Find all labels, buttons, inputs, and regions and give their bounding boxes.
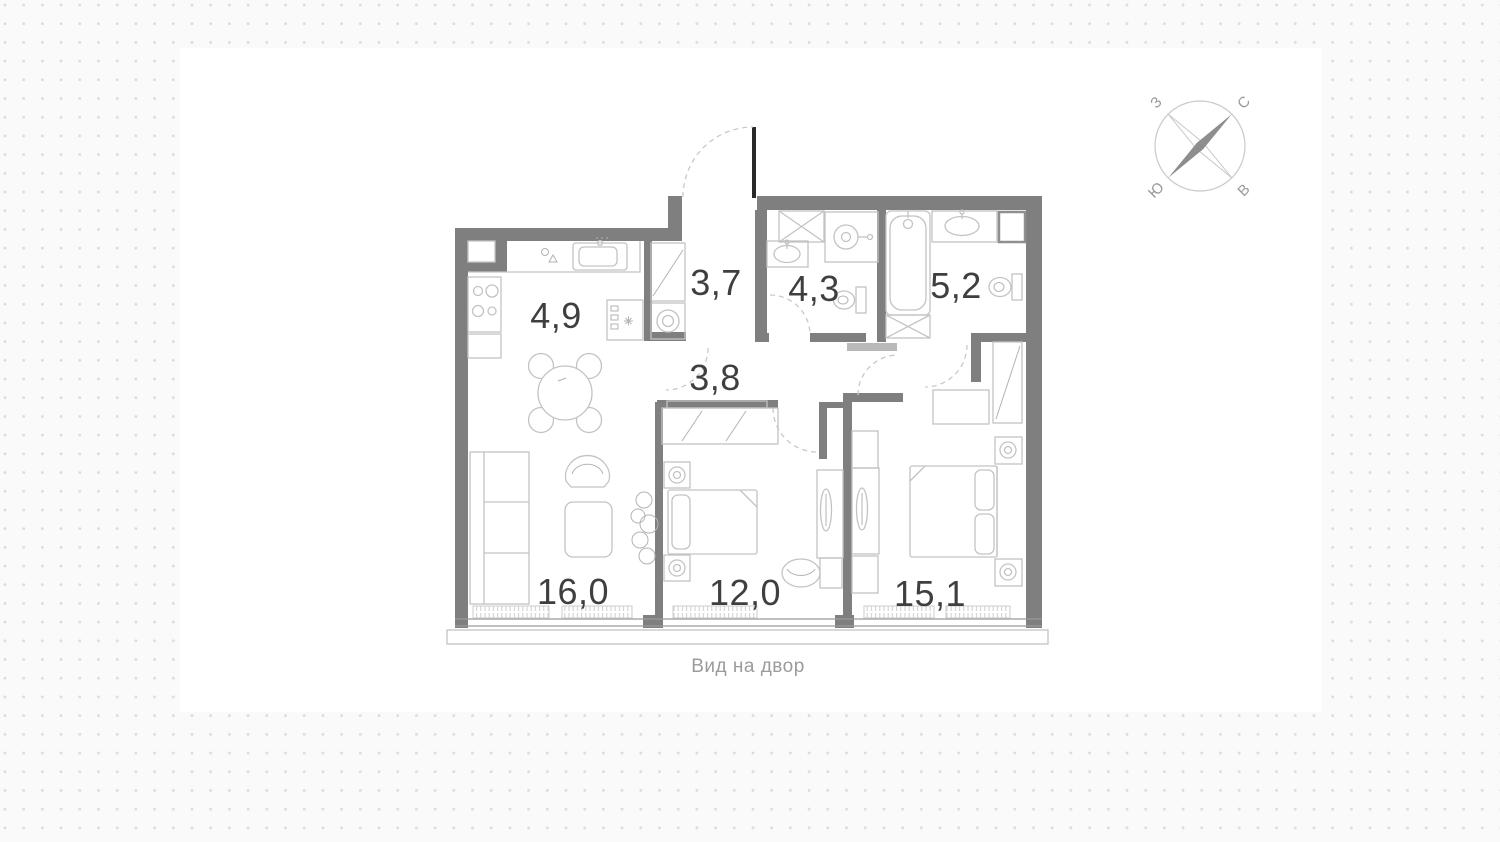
room-area-bedroom2: 15,1 xyxy=(894,573,966,614)
vent-shaft xyxy=(999,212,1025,242)
floor-plan-canvas: 4,9 3,7 4,3 5,2 3,8 16,0 12,0 15,1 Вид н… xyxy=(0,0,1500,842)
view-caption: Вид на двор xyxy=(691,656,805,677)
dining-table xyxy=(529,354,602,433)
room-area-bathroom1: 4,3 xyxy=(788,268,840,309)
room-area-bedroom1: 12,0 xyxy=(709,572,781,613)
room-area-bathroom2: 5,2 xyxy=(930,265,982,306)
window-sill xyxy=(447,630,1048,644)
kitchen-shaft xyxy=(468,241,495,262)
entry-door-leaf xyxy=(752,127,756,198)
floor-plan-page: 4,9 3,7 4,3 5,2 3,8 16,0 12,0 15,1 Вид н… xyxy=(0,0,1500,842)
room-area-hallway: 3,7 xyxy=(690,262,742,303)
room-area-corridor: 3,8 xyxy=(689,357,741,398)
room-area-livingroom: 16,0 xyxy=(537,571,609,612)
room-area-kitchen: 4,9 xyxy=(530,295,582,336)
